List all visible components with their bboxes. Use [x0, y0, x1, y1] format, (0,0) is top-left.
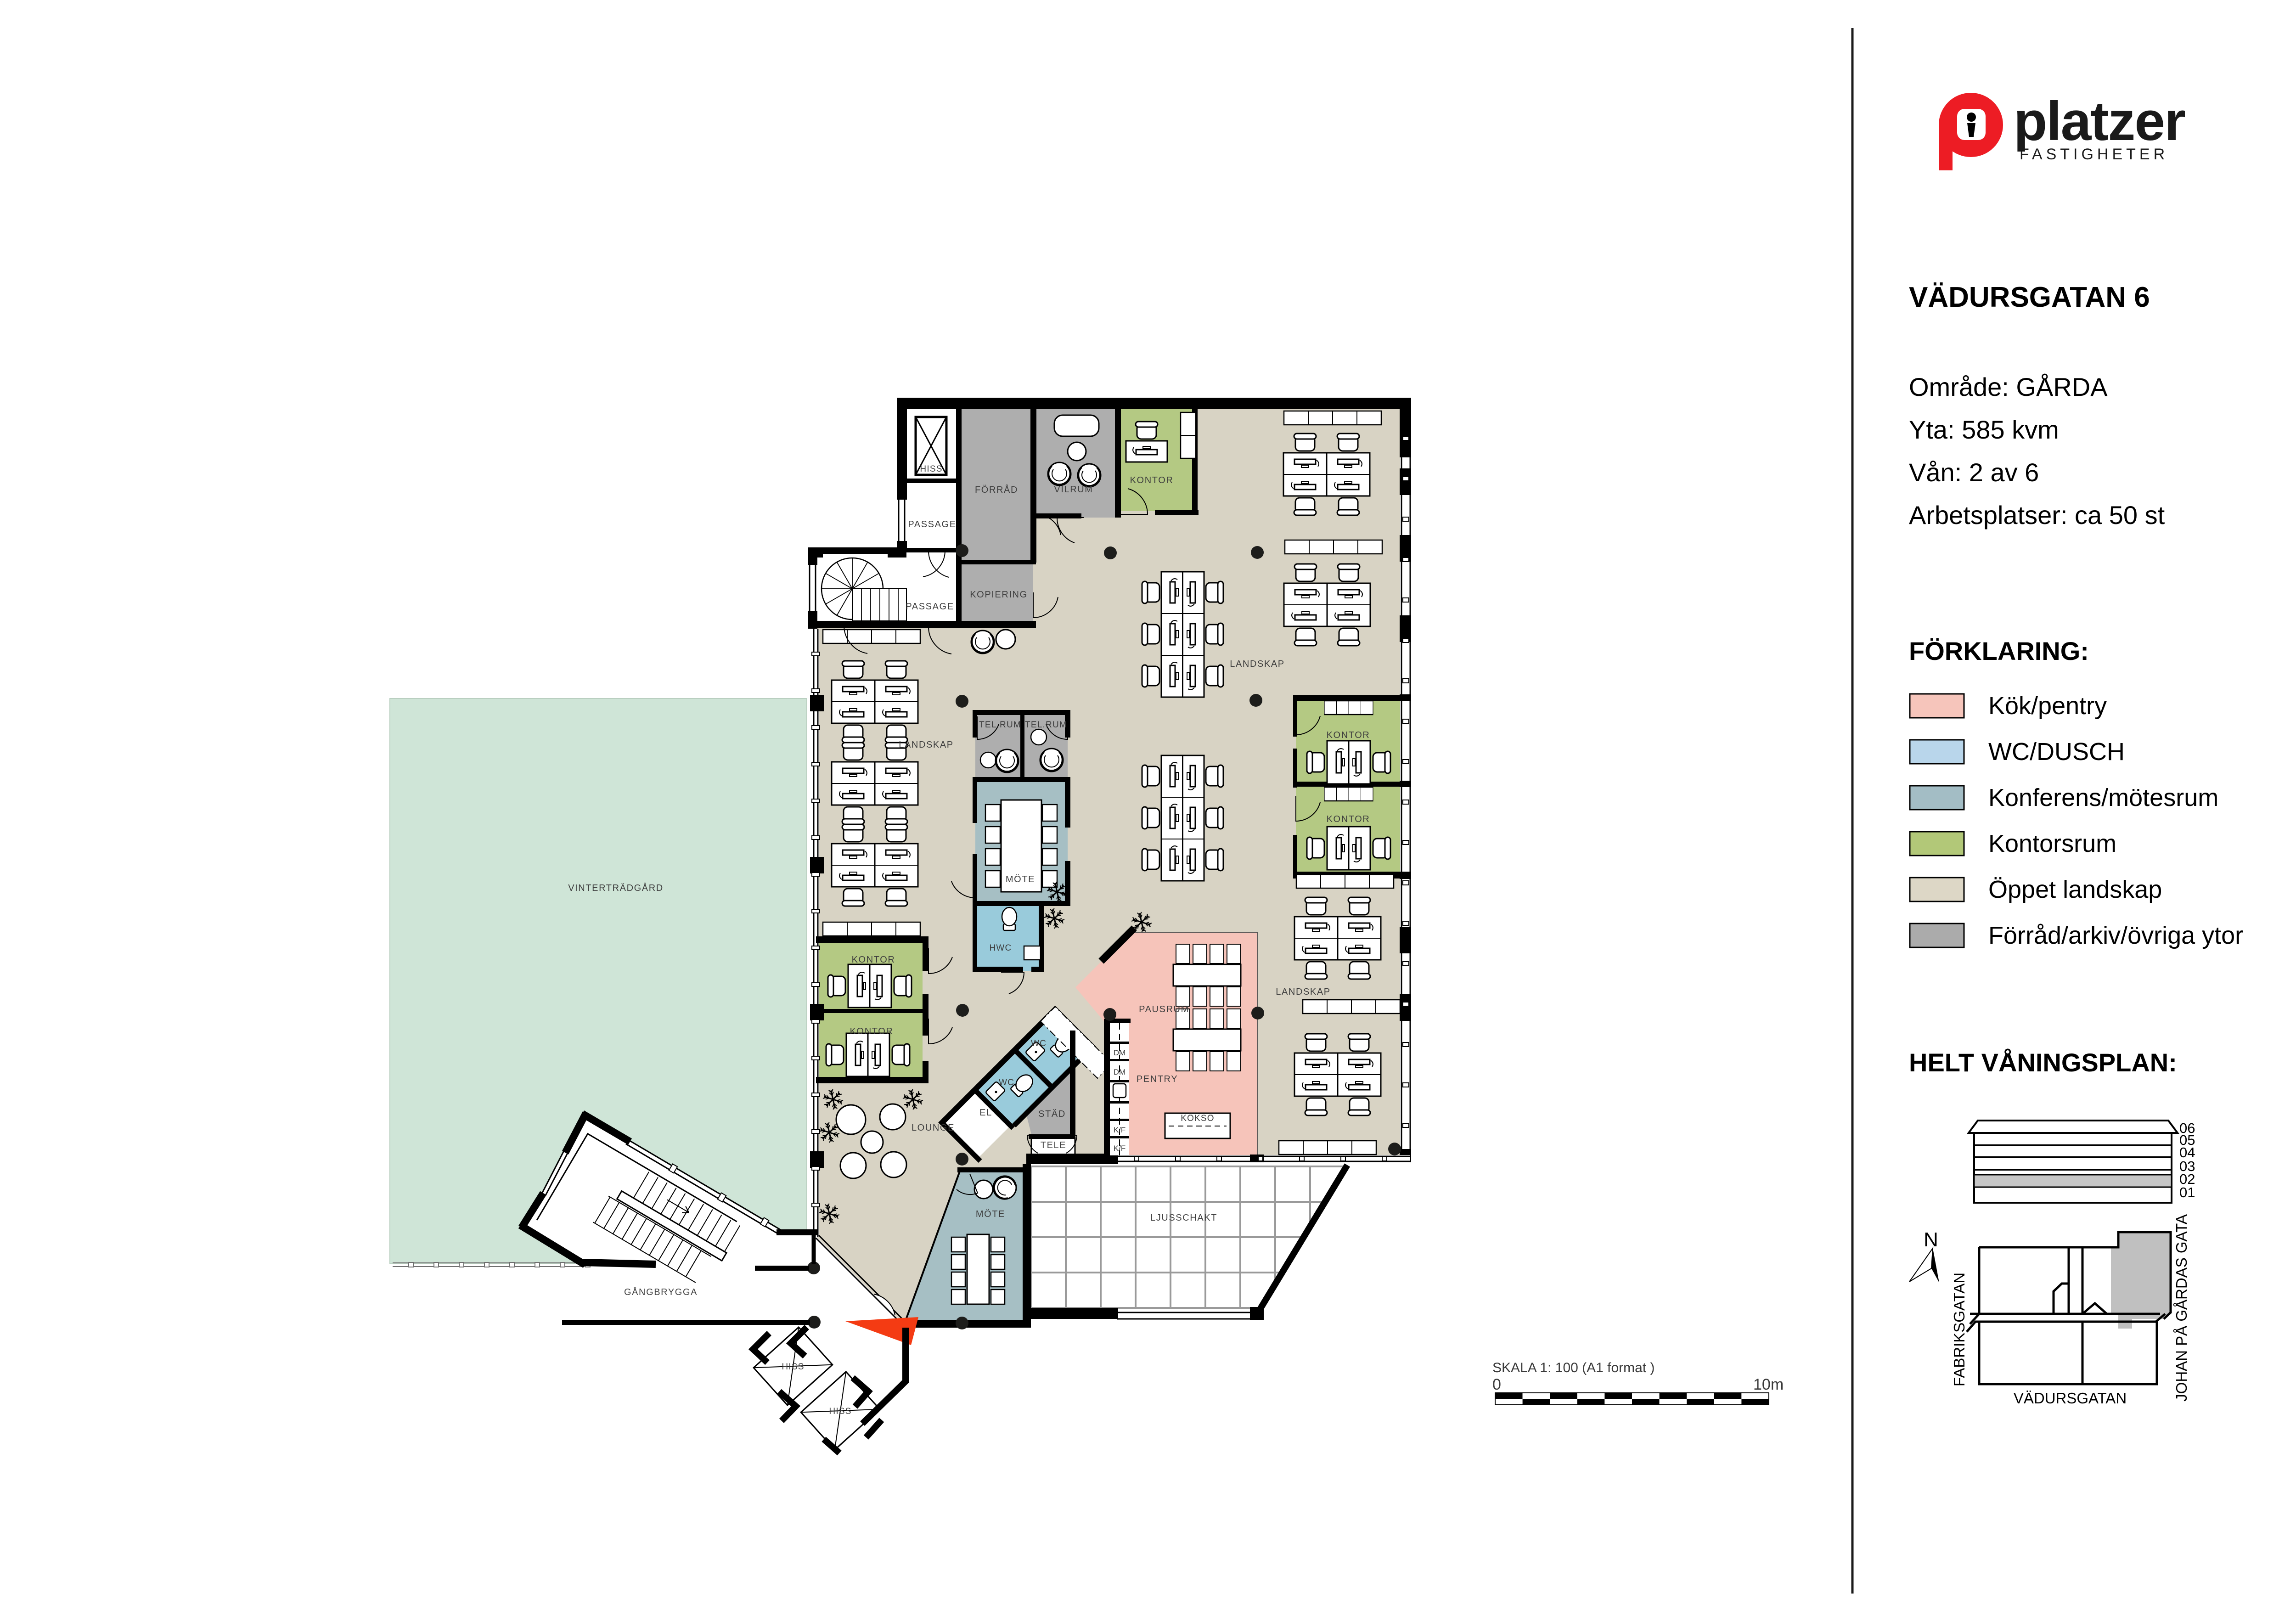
svg-text:FASTIGHETER: FASTIGHETER — [2020, 146, 2168, 163]
svg-text:DM: DM — [1114, 1068, 1125, 1076]
svg-text:HWC: HWC — [990, 943, 1012, 953]
svg-text:01: 01 — [2179, 1184, 2195, 1200]
svg-text:K/F: K/F — [1114, 1144, 1125, 1153]
svg-text:KONTOR: KONTOR — [850, 1026, 894, 1036]
svg-text:HISS: HISS — [782, 1362, 804, 1372]
svg-text:KÖKSÖ: KÖKSÖ — [1181, 1114, 1215, 1123]
svg-text:FÖRKLARING:: FÖRKLARING: — [1909, 636, 2089, 665]
svg-text:Konferens/mötesrum: Konferens/mötesrum — [1988, 784, 2218, 811]
svg-text:PAUSRUM: PAUSRUM — [1139, 1004, 1189, 1014]
svg-text:LANDSKAP: LANDSKAP — [1276, 987, 1331, 997]
svg-text:TELE: TELE — [1041, 1140, 1066, 1150]
svg-text:VÄDURSGATAN: VÄDURSGATAN — [2014, 1390, 2127, 1407]
svg-text:HELT VÅNINGSPLAN:: HELT VÅNINGSPLAN: — [1909, 1048, 2177, 1077]
svg-text:Förråd/arkiv/övriga ytor: Förråd/arkiv/övriga ytor — [1988, 922, 2243, 949]
svg-text:FABRIKSGATAN: FABRIKSGATAN — [1951, 1273, 1968, 1386]
svg-text:LANDSKAP: LANDSKAP — [899, 740, 954, 750]
svg-text:Kök/pentry: Kök/pentry — [1988, 692, 2107, 720]
svg-text:WC/DUSCH: WC/DUSCH — [1988, 738, 2125, 766]
svg-text:KONTOR: KONTOR — [852, 955, 895, 965]
svg-text:LJUSSCHAKT: LJUSSCHAKT — [1150, 1213, 1217, 1223]
svg-text:KONTOR: KONTOR — [1327, 730, 1370, 740]
svg-text:TEL.RUM: TEL.RUM — [1025, 720, 1067, 730]
svg-text:KOPIERING: KOPIERING — [970, 590, 1028, 600]
svg-text:Öppet landskap: Öppet landskap — [1988, 876, 2162, 903]
svg-text:JOHAN PÅ GÅRDAS GATA: JOHAN PÅ GÅRDAS GATA — [2173, 1214, 2190, 1402]
svg-text:MÖTE: MÖTE — [1006, 874, 1035, 884]
svg-text:DM: DM — [1114, 1048, 1125, 1057]
svg-text:Vån: 2 av 6: Vån: 2 av 6 — [1909, 458, 2039, 487]
svg-text:WC: WC — [999, 1078, 1014, 1087]
svg-text:PENTRY: PENTRY — [1137, 1074, 1178, 1084]
svg-text:FÖRRÅD: FÖRRÅD — [975, 484, 1018, 495]
svg-text:HISS: HISS — [920, 464, 942, 474]
svg-text:MÖTE: MÖTE — [976, 1209, 1005, 1219]
svg-text:N: N — [1924, 1228, 1938, 1251]
svg-text:platzer: platzer — [2014, 90, 2185, 152]
svg-text:WC: WC — [1031, 1039, 1047, 1048]
svg-text:Område: GÅRDA: Område: GÅRDA — [1909, 372, 2108, 401]
svg-text:VILRUM: VILRUM — [1054, 484, 1093, 495]
svg-text:TEL.RUM: TEL.RUM — [979, 720, 1021, 730]
svg-text:0: 0 — [1492, 1376, 1501, 1393]
svg-text:Kontorsrum: Kontorsrum — [1988, 830, 2116, 857]
svg-text:KONTOR: KONTOR — [1130, 475, 1174, 485]
svg-text:PASSAGE: PASSAGE — [906, 602, 954, 612]
svg-text:PASSAGE: PASSAGE — [908, 519, 956, 529]
svg-text:VÄDURSGATAN 6: VÄDURSGATAN 6 — [1909, 282, 2150, 313]
svg-text:GÅNGBRYGGA: GÅNGBRYGGA — [624, 1287, 698, 1297]
svg-text:STÄD: STÄD — [1038, 1109, 1066, 1119]
svg-text:EL: EL — [979, 1108, 992, 1118]
svg-text:VINTERTRÄDGÅRD: VINTERTRÄDGÅRD — [568, 883, 664, 893]
svg-text:Yta: 585 kvm: Yta: 585 kvm — [1909, 415, 2059, 444]
svg-text:K/F: K/F — [1114, 1126, 1125, 1134]
svg-text:10m: 10m — [1753, 1376, 1784, 1393]
svg-text:LOUNGE: LOUNGE — [912, 1123, 955, 1133]
svg-text:Arbetsplatser: ca 50 st: Arbetsplatser: ca 50 st — [1909, 501, 2165, 529]
svg-text:KONTOR: KONTOR — [1327, 814, 1370, 824]
svg-text:LANDSKAP: LANDSKAP — [1230, 659, 1285, 669]
svg-text:SKALA 1: 100 (A1 format ): SKALA 1: 100 (A1 format ) — [1492, 1360, 1655, 1375]
svg-text:HISS: HISS — [829, 1407, 851, 1416]
